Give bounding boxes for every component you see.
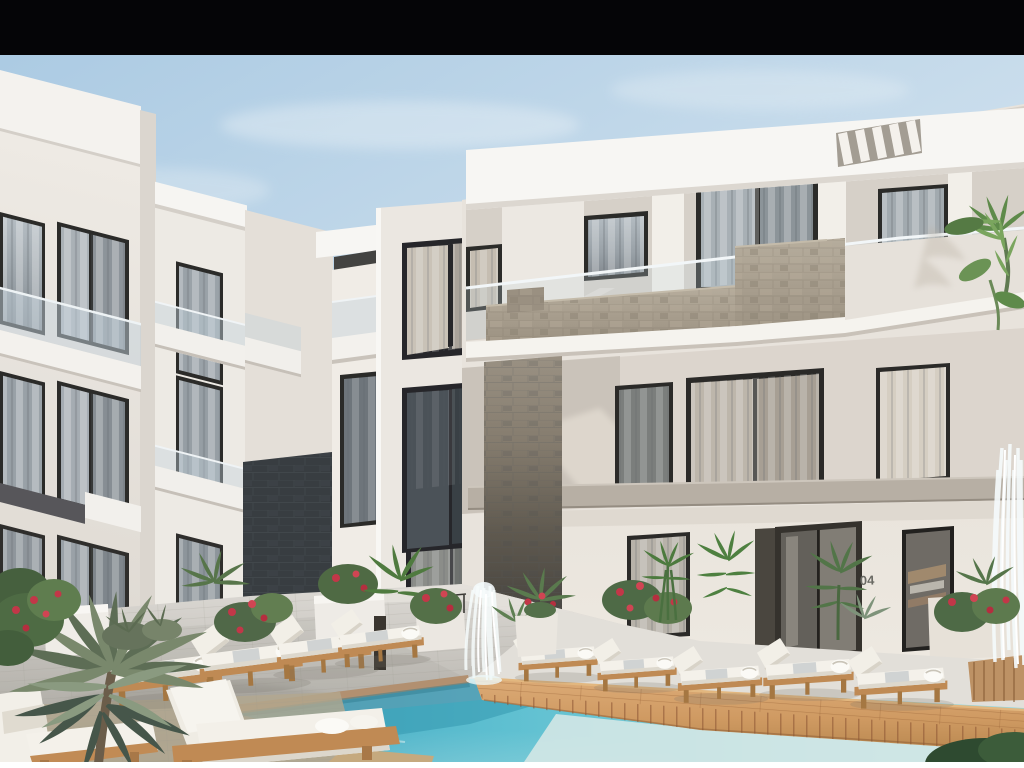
svg-text:04: 04 bbox=[860, 572, 876, 588]
